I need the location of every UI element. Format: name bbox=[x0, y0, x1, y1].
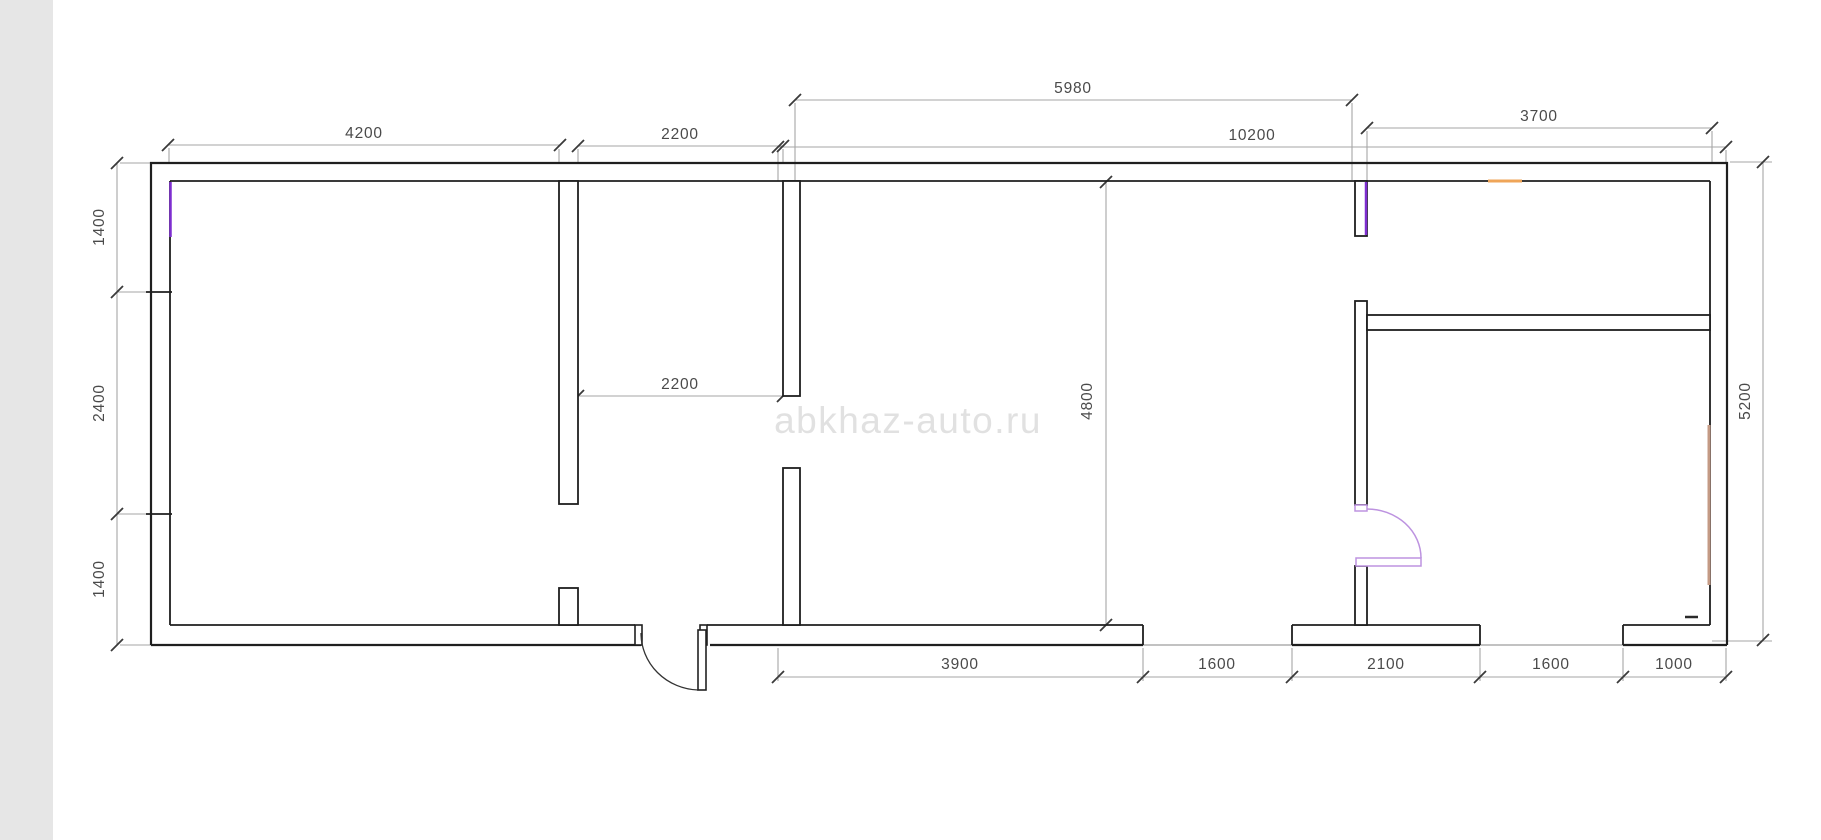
dim-label-5200: 5200 bbox=[1737, 382, 1754, 420]
interior-wall-horizontal bbox=[1367, 315, 1710, 330]
dim-label-3900: 3900 bbox=[941, 656, 979, 673]
interior-door-leaf bbox=[1356, 558, 1421, 566]
entrance-door bbox=[635, 625, 707, 690]
dim-label-1400-top: 1400 bbox=[91, 208, 108, 246]
interior-wall-b-upper bbox=[783, 181, 800, 396]
interior-door-swing-arc bbox=[1367, 509, 1421, 558]
dim-label-4800: 4800 bbox=[1079, 382, 1096, 420]
dim-label-1400-bottom: 1400 bbox=[91, 560, 108, 598]
dimension-lines bbox=[117, 100, 1772, 681]
dim-label-1000: 1000 bbox=[1655, 656, 1693, 673]
dim-label-2200-inner: 2200 bbox=[661, 376, 699, 393]
image-viewer-canvas: abkhaz-auto.ru bbox=[0, 0, 1821, 840]
dim-label-5980: 5980 bbox=[1054, 80, 1092, 97]
interior-wall-a-stub bbox=[559, 588, 578, 625]
interior-door bbox=[1355, 505, 1421, 566]
dim-label-1600-right: 1600 bbox=[1532, 656, 1570, 673]
watermark-text: abkhaz-auto.ru bbox=[774, 400, 1042, 441]
dim-label-2200-top: 2200 bbox=[661, 126, 699, 143]
interior-wall-c-middle bbox=[1355, 301, 1367, 505]
entrance-door-leaf bbox=[698, 630, 706, 690]
interior-wall-c-bottom bbox=[1355, 566, 1367, 625]
interior-wall-a-upper bbox=[559, 181, 578, 504]
entrance-door-swing-arc bbox=[641, 633, 698, 690]
dim-label-2100: 2100 bbox=[1367, 656, 1405, 673]
interior-door-hinge-cap bbox=[1355, 505, 1367, 511]
dim-label-3700: 3700 bbox=[1520, 108, 1558, 125]
dim-label-4200: 4200 bbox=[345, 125, 383, 142]
dim-label-10200: 10200 bbox=[1228, 127, 1275, 144]
floor-plan: abkhaz-auto.ru bbox=[0, 0, 1821, 840]
interior-walls bbox=[559, 181, 1710, 625]
dim-label-1600-left: 1600 bbox=[1198, 656, 1236, 673]
interior-wall-b-lower bbox=[783, 468, 800, 625]
dim-label-2400: 2400 bbox=[91, 384, 108, 422]
